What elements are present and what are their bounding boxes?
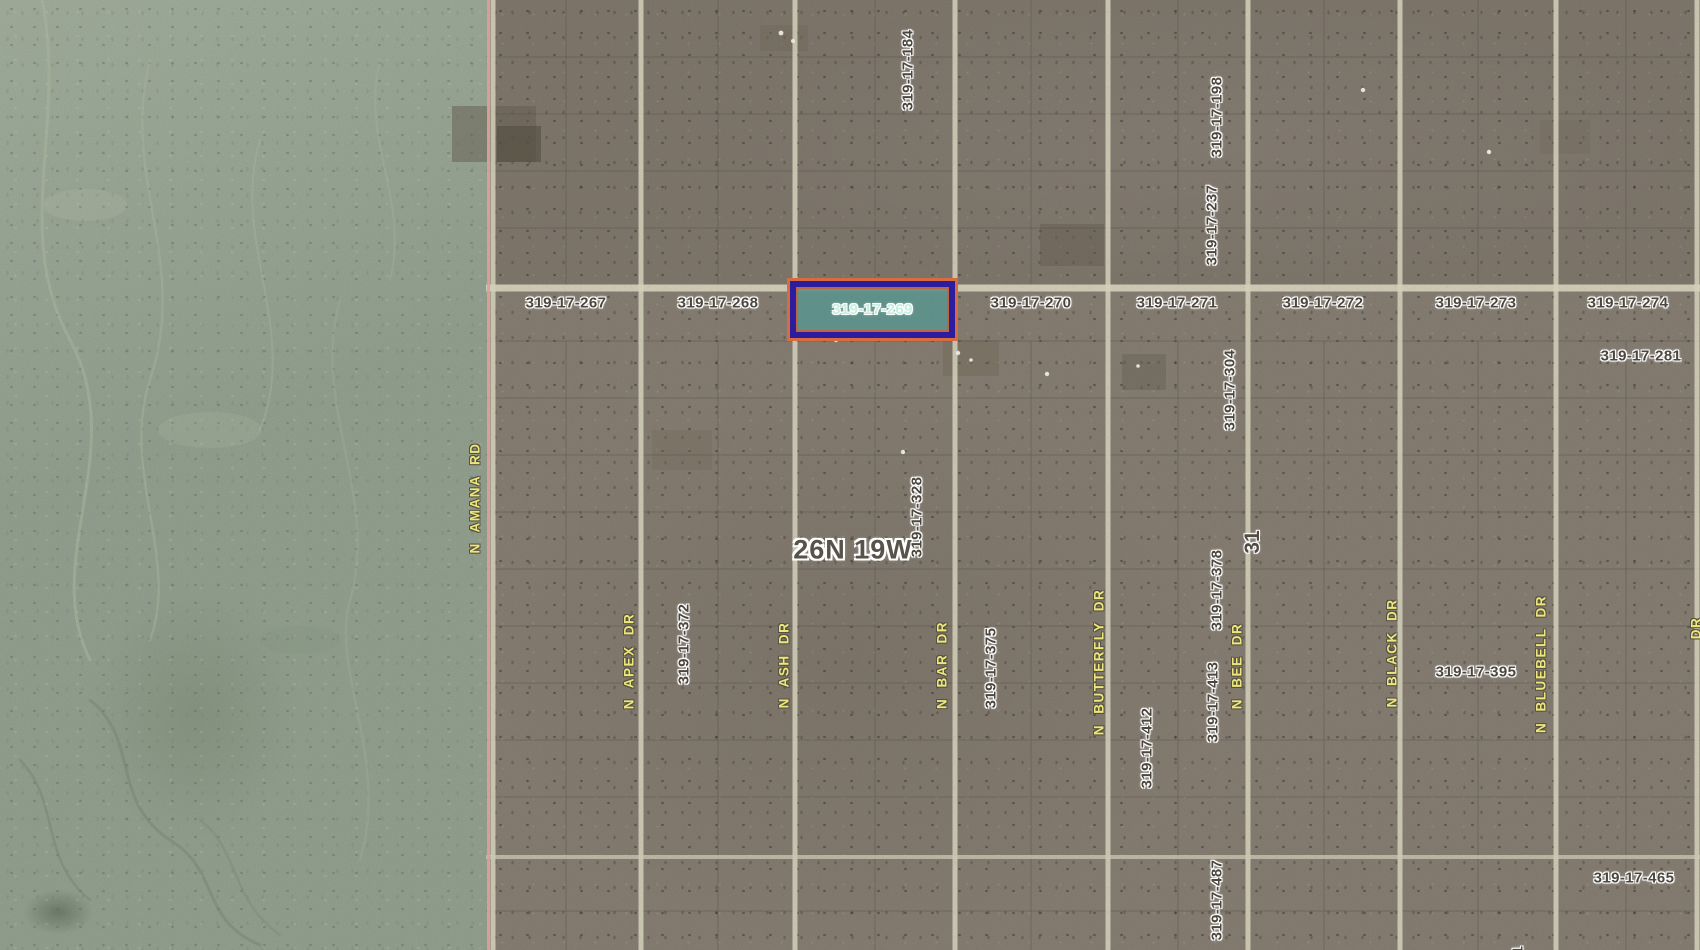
map-linework [0,0,1700,950]
highlighted-parcel[interactable]: 319-17-269 [790,281,955,338]
map-canvas[interactable]: 26N 19W 31 319-17-267319-17-268319-17-27… [0,0,1700,950]
section-number-label: 31 [1241,530,1265,553]
highlighted-parcel-label: 319-17-269 [832,301,913,318]
township-range-label: 26N 19W [793,535,913,566]
